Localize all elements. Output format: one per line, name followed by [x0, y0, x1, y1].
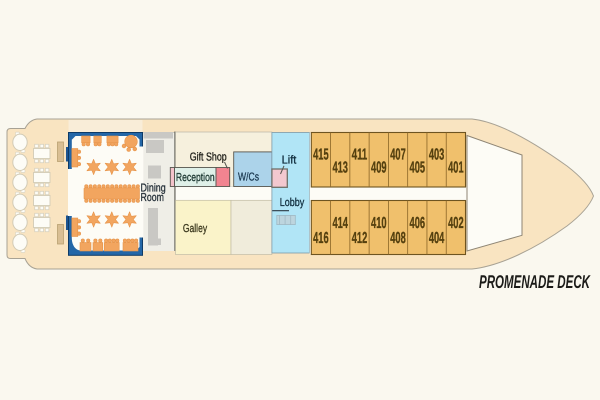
svg-text:Galley: Galley: [183, 223, 207, 235]
svg-text:406: 406: [410, 215, 426, 232]
svg-text:405: 405: [410, 160, 426, 177]
svg-text:Gift Shop: Gift Shop: [190, 151, 227, 163]
svg-text:402: 402: [448, 215, 464, 232]
svg-text:Lobby: Lobby: [280, 197, 305, 209]
svg-text:410: 410: [371, 215, 387, 232]
svg-text:412: 412: [352, 230, 368, 247]
svg-text:404: 404: [429, 230, 445, 247]
svg-text:409: 409: [371, 160, 387, 177]
svg-text:W/Cs: W/Cs: [238, 171, 259, 183]
svg-text:408: 408: [390, 230, 406, 247]
svg-text:407: 407: [390, 146, 406, 163]
svg-text:Lift: Lift: [282, 155, 297, 167]
svg-text:Reception: Reception: [176, 172, 215, 184]
svg-text:413: 413: [332, 160, 348, 177]
svg-text:414: 414: [332, 215, 348, 232]
svg-text:PROMENADE DECK: PROMENADE DECK: [479, 271, 591, 292]
svg-text:Room: Room: [141, 192, 164, 204]
svg-text:411: 411: [352, 146, 368, 163]
svg-text:416: 416: [313, 230, 329, 247]
svg-text:401: 401: [448, 160, 464, 177]
svg-text:415: 415: [313, 146, 329, 163]
svg-text:403: 403: [429, 146, 445, 163]
